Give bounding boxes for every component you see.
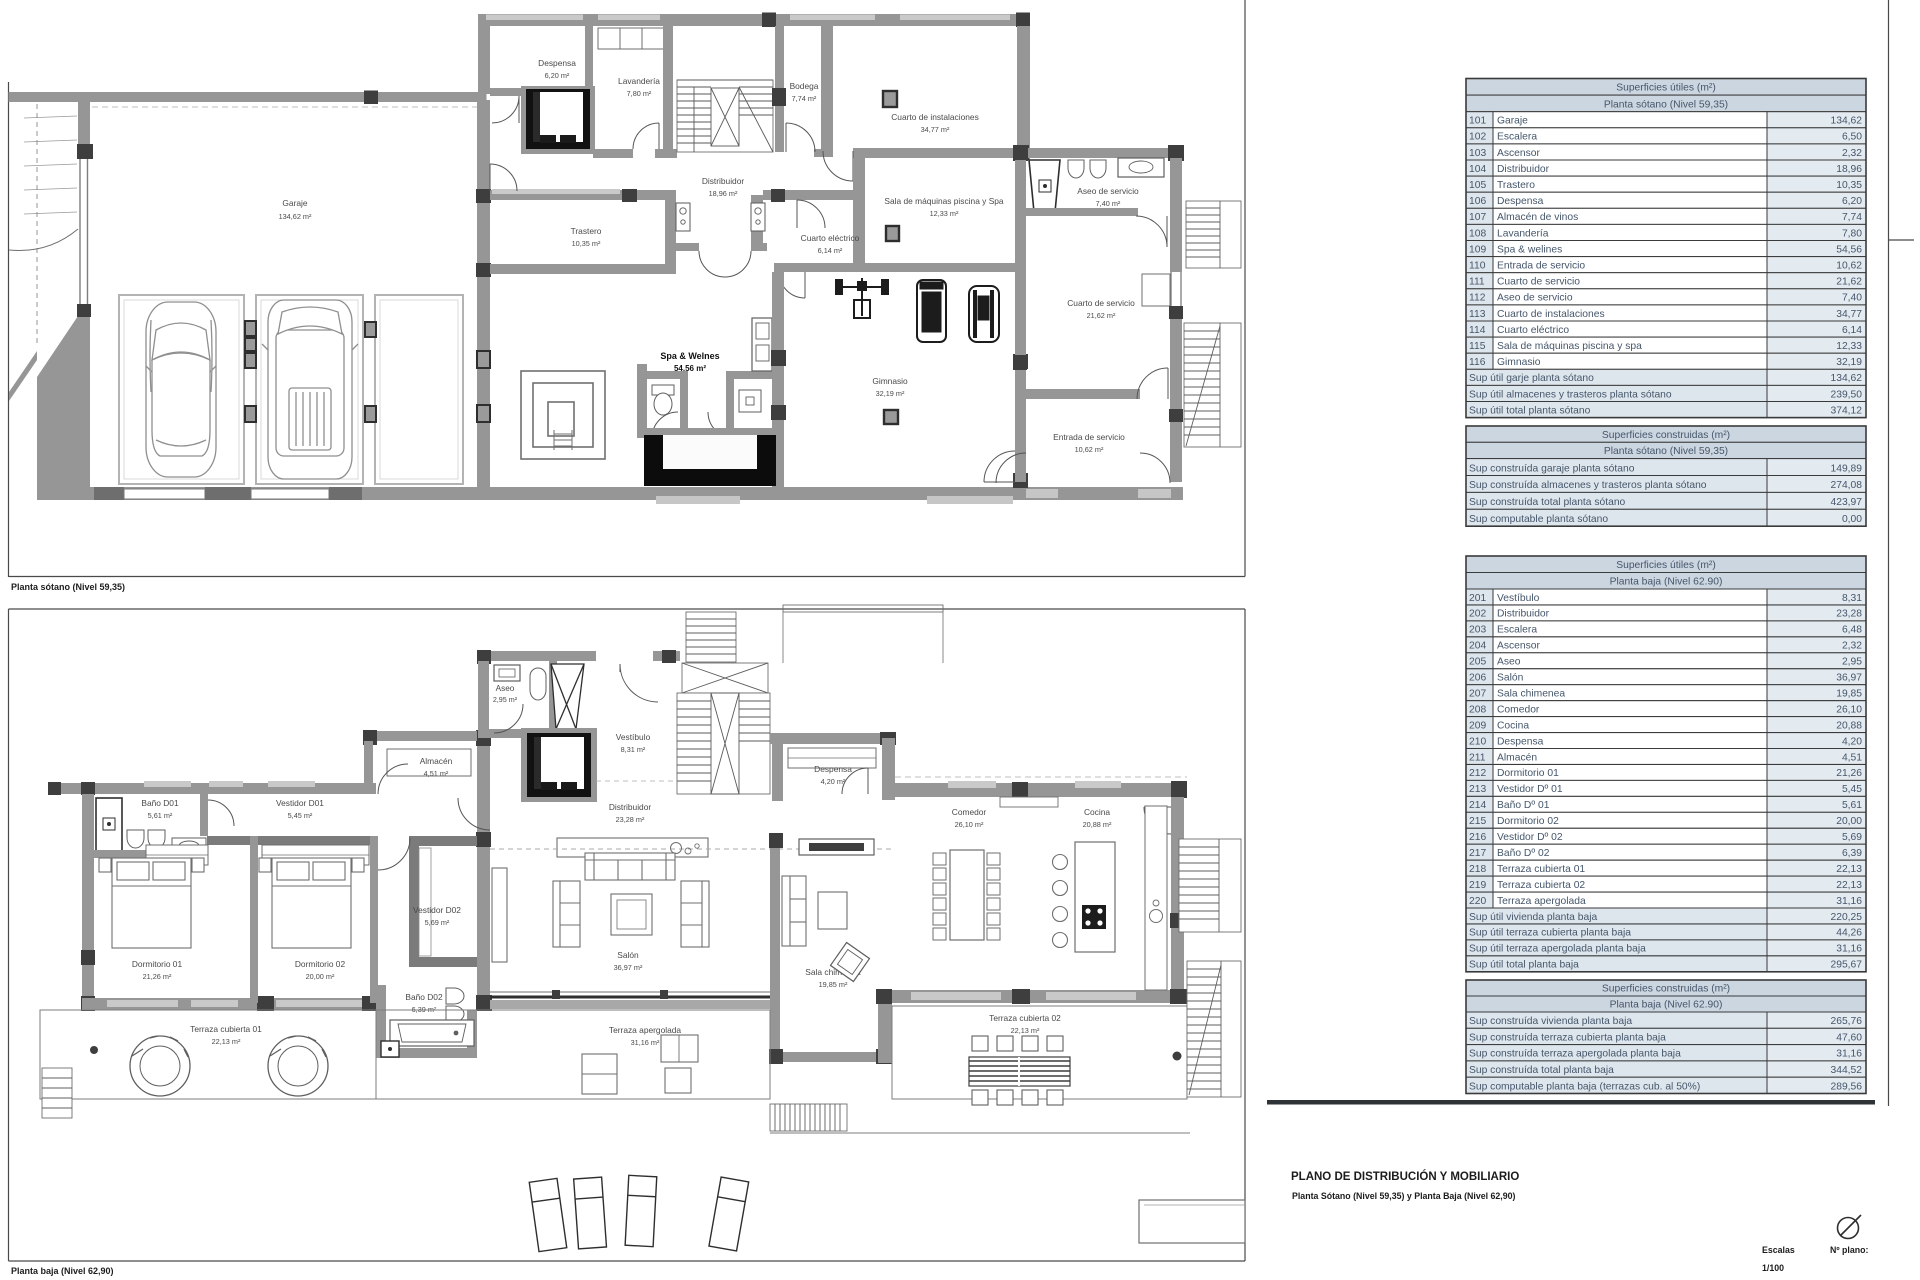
svg-text:217: 217 (1469, 848, 1486, 859)
svg-text:Trastero: Trastero (1497, 180, 1535, 191)
svg-text:Aseo: Aseo (1497, 657, 1521, 668)
svg-text:18,96: 18,96 (1836, 164, 1862, 175)
svg-text:Almacén de vinos: Almacén de vinos (1497, 212, 1578, 223)
svg-text:220,25: 220,25 (1831, 912, 1863, 923)
svg-text:Gimnasio: Gimnasio (1497, 357, 1541, 368)
svg-text:102: 102 (1469, 132, 1486, 143)
svg-text:8,31 m²: 8,31 m² (621, 745, 646, 754)
svg-text:Almacén: Almacén (1497, 752, 1537, 763)
svg-text:Planta baja (Nivel 62.90): Planta baja (Nivel 62.90) (1610, 1000, 1723, 1011)
svg-text:Distribuidor: Distribuidor (609, 802, 652, 812)
svg-text:5,69: 5,69 (1842, 832, 1862, 843)
svg-text:Terraza cubierta 02: Terraza cubierta 02 (1497, 880, 1585, 891)
svg-text:109: 109 (1469, 244, 1486, 255)
svg-text:Lavandería: Lavandería (1497, 228, 1549, 239)
svg-text:22,13 m²: 22,13 m² (1011, 1026, 1040, 1035)
svg-text:Baño D01: Baño D01 (141, 798, 179, 808)
svg-text:Superficies construidas (m²): Superficies construidas (m²) (1602, 430, 1730, 441)
svg-text:Sup útil total planta baja: Sup útil total planta baja (1469, 960, 1579, 971)
svg-text:Terraza cubierta 01: Terraza cubierta 01 (1497, 864, 1585, 875)
svg-text:6,20: 6,20 (1842, 196, 1862, 207)
svg-text:220: 220 (1469, 896, 1486, 907)
svg-text:134,62: 134,62 (1831, 373, 1863, 384)
svg-text:111: 111 (1469, 277, 1485, 288)
svg-text:5,45 m²: 5,45 m² (288, 811, 313, 820)
svg-text:22,13: 22,13 (1836, 864, 1862, 875)
svg-text:Planta Sótano (Nivel 59,35) y: Planta Sótano (Nivel 59,35) y Planta Baj… (1292, 1191, 1516, 1201)
svg-text:8,31: 8,31 (1842, 593, 1862, 604)
svg-text:31,16: 31,16 (1836, 896, 1862, 907)
svg-text:Terraza cubierta 02: Terraza cubierta 02 (989, 1013, 1061, 1023)
svg-text:Gimnasio: Gimnasio (872, 376, 908, 386)
svg-text:Cuarto eléctrico: Cuarto eléctrico (801, 233, 860, 243)
svg-text:23,28: 23,28 (1836, 609, 1862, 620)
svg-text:21,26 m²: 21,26 m² (143, 972, 172, 981)
svg-text:274,08: 274,08 (1831, 480, 1863, 491)
svg-text:210: 210 (1469, 736, 1486, 747)
svg-text:5,61 m²: 5,61 m² (148, 811, 173, 820)
svg-text:4,20 m²: 4,20 m² (821, 777, 846, 786)
svg-text:4,51: 4,51 (1842, 752, 1862, 763)
svg-text:Sup computable planta baja (te: Sup computable planta baja (terrazas cub… (1469, 1081, 1700, 1092)
svg-text:204: 204 (1469, 641, 1486, 652)
svg-text:7,74: 7,74 (1842, 212, 1862, 223)
svg-text:Sup útil almacenes y trasteros: Sup útil almacenes y trasteros planta só… (1469, 389, 1672, 400)
svg-text:2,32: 2,32 (1842, 641, 1862, 652)
svg-text:Cuarto eléctrico: Cuarto eléctrico (1497, 325, 1569, 336)
svg-text:26,10 m²: 26,10 m² (955, 820, 984, 829)
svg-text:Planta baja (Nivel 62,90): Planta baja (Nivel 62,90) (11, 1266, 114, 1276)
svg-text:Vestíbulo: Vestíbulo (616, 732, 651, 742)
svg-text:Distribuidor: Distribuidor (1497, 609, 1550, 620)
svg-text:Superficies construidas (m²): Superficies construidas (m²) (1602, 984, 1730, 995)
svg-text:7,74 m²: 7,74 m² (792, 94, 817, 103)
svg-text:32,19 m²: 32,19 m² (876, 389, 905, 398)
svg-text:Aseo: Aseo (496, 684, 515, 693)
svg-text:20,00 m²: 20,00 m² (306, 972, 335, 981)
svg-text:Escalera: Escalera (1497, 625, 1537, 636)
svg-text:20,88 m²: 20,88 m² (1083, 820, 1112, 829)
svg-text:Escalas: Escalas (1762, 1245, 1795, 1255)
svg-text:Salón: Salón (1497, 673, 1524, 684)
svg-text:7,80: 7,80 (1842, 228, 1862, 239)
svg-text:Garaje: Garaje (1497, 116, 1528, 127)
svg-text:Entrada de servicio: Entrada de servicio (1497, 261, 1585, 272)
svg-text:113: 113 (1469, 309, 1486, 320)
svg-text:21,26: 21,26 (1836, 768, 1862, 779)
svg-text:212: 212 (1469, 768, 1486, 779)
svg-text:211: 211 (1469, 752, 1486, 763)
svg-text:Escalera: Escalera (1497, 132, 1537, 143)
svg-text:Almacén: Almacén (420, 756, 453, 766)
svg-text:202: 202 (1469, 609, 1486, 620)
svg-text:Cuarto de servicio: Cuarto de servicio (1497, 277, 1580, 288)
svg-text:26,10: 26,10 (1836, 704, 1862, 715)
svg-text:Salón: Salón (617, 950, 639, 960)
svg-text:5,69 m²: 5,69 m² (425, 918, 450, 927)
svg-text:Sup construída terraza apergol: Sup construída terraza apergolada planta… (1469, 1049, 1681, 1060)
svg-text:216: 216 (1469, 832, 1486, 843)
svg-text:10,35 m²: 10,35 m² (572, 239, 601, 248)
svg-text:5,61: 5,61 (1842, 800, 1862, 811)
svg-text:Sala de máquinas piscina y spa: Sala de máquinas piscina y spa (1497, 341, 1642, 352)
svg-text:219: 219 (1469, 880, 1486, 891)
svg-text:Terraza apergolada: Terraza apergolada (609, 1025, 682, 1035)
svg-text:34,77 m²: 34,77 m² (921, 125, 950, 134)
svg-text:Ascensor: Ascensor (1497, 148, 1540, 159)
svg-text:31,16: 31,16 (1836, 944, 1862, 955)
svg-text:6,50: 6,50 (1842, 132, 1862, 143)
svg-text:19,85: 19,85 (1836, 689, 1862, 700)
svg-text:207: 207 (1469, 689, 1486, 700)
svg-text:Planta sótano (Nivel 59,35): Planta sótano (Nivel 59,35) (1604, 446, 1728, 457)
svg-text:214: 214 (1469, 800, 1486, 811)
svg-text:Spa & welines: Spa & welines (1497, 244, 1562, 255)
svg-text:Bodega: Bodega (790, 81, 819, 91)
svg-text:21,62 m²: 21,62 m² (1087, 311, 1116, 320)
svg-text:18,96 m²: 18,96 m² (709, 189, 738, 198)
svg-text:208: 208 (1469, 704, 1486, 715)
svg-text:112: 112 (1469, 293, 1486, 304)
svg-text:6,39: 6,39 (1842, 848, 1862, 859)
svg-text:Garaje: Garaje (282, 198, 307, 208)
svg-text:21,62: 21,62 (1836, 277, 1862, 288)
svg-text:106: 106 (1469, 196, 1486, 207)
svg-text:Dormitorio 02: Dormitorio 02 (1497, 816, 1559, 827)
svg-text:Planta sótano (Nivel 59,35): Planta sótano (Nivel 59,35) (1604, 99, 1728, 110)
svg-text:36,97 m²: 36,97 m² (614, 963, 643, 972)
svg-text:Aseo de servicio: Aseo de servicio (1077, 186, 1139, 196)
svg-text:2,95 m²: 2,95 m² (493, 695, 518, 704)
svg-text:Baño D02: Baño D02 (405, 992, 443, 1002)
svg-text:20,88: 20,88 (1836, 720, 1862, 731)
svg-text:Ascensor: Ascensor (1497, 641, 1540, 652)
svg-text:Aseo de servicio: Aseo de servicio (1497, 293, 1573, 304)
svg-text:Distribuidor: Distribuidor (1497, 164, 1550, 175)
svg-text:Sup útil total planta sótano: Sup útil total planta sótano (1469, 405, 1591, 416)
svg-text:Vestíbulo: Vestíbulo (1497, 593, 1540, 604)
svg-text:Vestidor D01: Vestidor D01 (276, 798, 324, 808)
svg-text:Sup construída garaje planta s: Sup construída garaje planta sótano (1469, 463, 1635, 474)
svg-text:103: 103 (1469, 148, 1486, 159)
svg-text:Sup útil garje planta sótano: Sup útil garje planta sótano (1469, 373, 1594, 384)
svg-text:Sup construída total planta ba: Sup construída total planta baja (1469, 1065, 1614, 1076)
svg-text:295,67: 295,67 (1831, 960, 1863, 971)
svg-text:7,40: 7,40 (1842, 293, 1862, 304)
svg-text:215: 215 (1469, 816, 1486, 827)
svg-text:31,16: 31,16 (1836, 1049, 1862, 1060)
svg-text:Cocina: Cocina (1497, 720, 1529, 731)
svg-text:Spa & Welnes: Spa & Welnes (660, 351, 719, 361)
svg-text:20,00: 20,00 (1836, 816, 1862, 827)
svg-text:54,56: 54,56 (1836, 244, 1862, 255)
svg-text:114: 114 (1469, 325, 1486, 336)
svg-text:Sup útil terraza cubierta plan: Sup útil terraza cubierta planta baja (1469, 928, 1631, 939)
svg-text:Dormitorio 01: Dormitorio 01 (132, 959, 183, 969)
svg-text:115: 115 (1469, 341, 1486, 352)
svg-text:Comedor: Comedor (952, 807, 987, 817)
svg-text:Vestidor Dº 01: Vestidor Dº 01 (1497, 784, 1563, 795)
svg-text:32,19: 32,19 (1836, 357, 1862, 368)
svg-text:Sup útil vivienda planta baja: Sup útil vivienda planta baja (1469, 912, 1598, 923)
svg-text:Despensa: Despensa (1497, 196, 1544, 207)
svg-text:34,77: 34,77 (1836, 309, 1862, 320)
svg-text:6,48: 6,48 (1842, 625, 1862, 636)
svg-text:Lavandería: Lavandería (618, 76, 660, 86)
svg-text:Terraza apergolada: Terraza apergolada (1497, 896, 1586, 907)
svg-text:Planta sótano (Nivel 59,35): Planta sótano (Nivel 59,35) (11, 582, 125, 592)
svg-text:Entrada de servicio: Entrada de servicio (1053, 432, 1125, 442)
svg-text:149,89: 149,89 (1831, 463, 1863, 474)
svg-text:213: 213 (1469, 784, 1486, 795)
svg-text:374,12: 374,12 (1831, 405, 1863, 416)
svg-text:Superficies útiles (m²): Superficies útiles (m²) (1616, 560, 1716, 571)
svg-text:423,97: 423,97 (1831, 497, 1863, 508)
svg-text:Cuarto de servicio: Cuarto de servicio (1067, 298, 1135, 308)
svg-text:Nº plano:: Nº plano: (1830, 1245, 1868, 1255)
svg-text:206: 206 (1469, 673, 1486, 684)
svg-text:Distribuidor: Distribuidor (702, 176, 745, 186)
svg-text:104: 104 (1469, 164, 1486, 175)
svg-text:12,33 m²: 12,33 m² (930, 209, 959, 218)
svg-text:10,35: 10,35 (1836, 180, 1862, 191)
svg-text:Vestidor Dº 02: Vestidor Dº 02 (1497, 832, 1563, 843)
svg-text:Sup construída vivienda planta: Sup construída vivienda planta baja (1469, 1016, 1632, 1027)
svg-text:PLANO DE DISTRIBUCIÓN Y MOBILI: PLANO DE DISTRIBUCIÓN Y MOBILIARIO (1291, 1170, 1519, 1183)
svg-text:Cocina: Cocina (1084, 807, 1110, 817)
svg-text:47,60: 47,60 (1836, 1032, 1862, 1043)
svg-text:2,95: 2,95 (1842, 657, 1862, 668)
svg-text:205: 205 (1469, 657, 1486, 668)
svg-text:7,40 m²: 7,40 m² (1096, 199, 1121, 208)
svg-text:289,56: 289,56 (1831, 1081, 1863, 1092)
svg-text:Trastero: Trastero (571, 226, 602, 236)
svg-text:134,62 m²: 134,62 m² (279, 212, 312, 221)
svg-text:218: 218 (1469, 864, 1486, 875)
svg-text:Sala chimenea: Sala chimenea (1497, 689, 1565, 700)
svg-text:6,14: 6,14 (1842, 325, 1862, 336)
svg-text:110: 110 (1469, 261, 1486, 272)
svg-text:0,00: 0,00 (1842, 514, 1862, 525)
svg-text:6,20 m²: 6,20 m² (545, 71, 570, 80)
svg-text:Planta baja (Nivel 62.90): Planta baja (Nivel 62.90) (1610, 577, 1723, 588)
svg-text:7,80 m²: 7,80 m² (627, 89, 652, 98)
svg-text:107: 107 (1469, 212, 1486, 223)
svg-text:44,26: 44,26 (1836, 928, 1862, 939)
svg-text:31,16 m²: 31,16 m² (631, 1038, 660, 1047)
svg-text:36,97: 36,97 (1836, 673, 1862, 684)
svg-text:Comedor: Comedor (1497, 704, 1540, 715)
svg-text:134,62: 134,62 (1831, 116, 1863, 127)
svg-text:Sup útil terraza apergolada pl: Sup útil terraza apergolada planta baja (1469, 944, 1646, 955)
svg-text:10,62: 10,62 (1836, 261, 1862, 272)
svg-text:116: 116 (1469, 357, 1486, 368)
svg-text:4,51 m²: 4,51 m² (424, 769, 449, 778)
svg-text:Vestidor D02: Vestidor D02 (413, 905, 461, 915)
svg-text:Despensa: Despensa (814, 764, 852, 774)
svg-text:Sup construída total planta só: Sup construída total planta sótano (1469, 497, 1626, 508)
svg-text:Sala de máquinas piscina y Spa: Sala de máquinas piscina y Spa (884, 196, 1004, 206)
svg-text:Sup construída terraza cubiert: Sup construída terraza cubierta planta b… (1469, 1032, 1666, 1043)
svg-text:Superficies útiles (m²): Superficies útiles (m²) (1616, 83, 1716, 94)
svg-text:265,76: 265,76 (1831, 1016, 1863, 1027)
svg-text:Cuarto de instalaciones: Cuarto de instalaciones (1497, 309, 1605, 320)
svg-text:203: 203 (1469, 625, 1486, 636)
svg-text:Terraza cubierta 01: Terraza cubierta 01 (190, 1024, 262, 1034)
svg-text:239,50: 239,50 (1831, 389, 1863, 400)
svg-text:108: 108 (1469, 228, 1486, 239)
svg-text:344,52: 344,52 (1831, 1065, 1863, 1076)
svg-text:10,62 m²: 10,62 m² (1075, 445, 1104, 454)
svg-text:209: 209 (1469, 720, 1486, 731)
svg-text:Sup construída almacenes y tra: Sup construída almacenes y trasteros pla… (1469, 480, 1707, 491)
svg-text:105: 105 (1469, 180, 1486, 191)
svg-text:Despensa: Despensa (1497, 736, 1544, 747)
svg-text:2,32: 2,32 (1842, 148, 1862, 159)
svg-text:101: 101 (1469, 116, 1486, 127)
svg-text:4,20: 4,20 (1842, 736, 1862, 747)
svg-text:Sup computable planta sótano: Sup computable planta sótano (1469, 514, 1608, 525)
svg-text:19,85 m²: 19,85 m² (819, 980, 848, 989)
svg-text:1/100: 1/100 (1762, 1263, 1784, 1273)
svg-text:23,28 m²: 23,28 m² (616, 815, 645, 824)
svg-text:5,45: 5,45 (1842, 784, 1862, 795)
svg-text:Baño Dº 01: Baño Dº 01 (1497, 800, 1550, 811)
svg-text:12,33: 12,33 (1836, 341, 1862, 352)
svg-text:Dormitorio 02: Dormitorio 02 (295, 959, 346, 969)
svg-text:Dormitorio 01: Dormitorio 01 (1497, 768, 1559, 779)
svg-text:22,13 m²: 22,13 m² (212, 1037, 241, 1046)
svg-text:22,13: 22,13 (1836, 880, 1862, 891)
svg-text:Cuarto de instalaciones: Cuarto de instalaciones (891, 112, 979, 122)
svg-text:Despensa: Despensa (538, 58, 576, 68)
svg-text:Baño Dº 02: Baño Dº 02 (1497, 848, 1550, 859)
svg-text:6,14 m²: 6,14 m² (818, 246, 843, 255)
svg-text:201: 201 (1469, 593, 1486, 604)
